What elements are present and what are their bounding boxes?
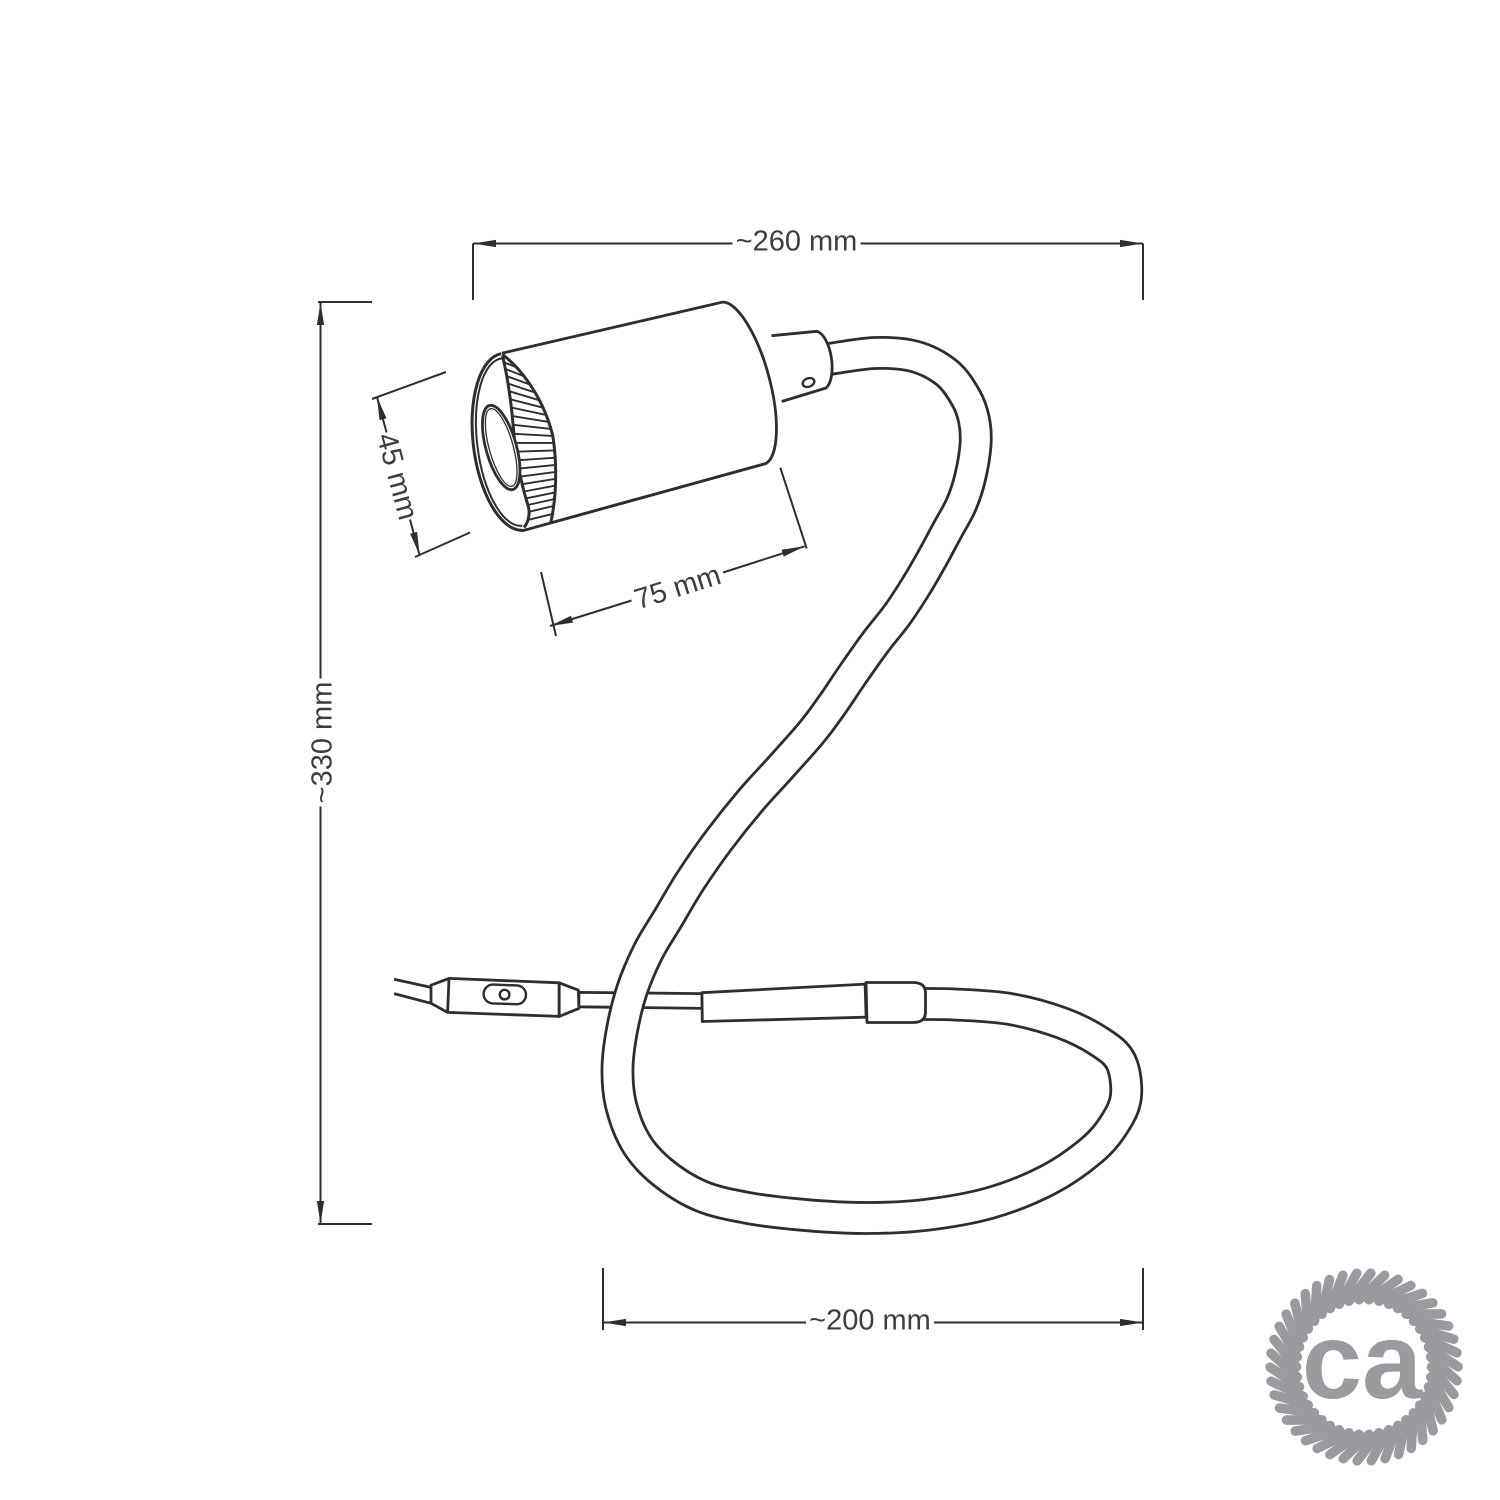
svg-text:~330 mm: ~330 mm	[307, 682, 339, 804]
svg-text:~200 mm: ~200 mm	[809, 1305, 931, 1337]
svg-text:ca: ca	[1302, 1300, 1423, 1421]
svg-text:~260 mm: ~260 mm	[736, 226, 858, 258]
